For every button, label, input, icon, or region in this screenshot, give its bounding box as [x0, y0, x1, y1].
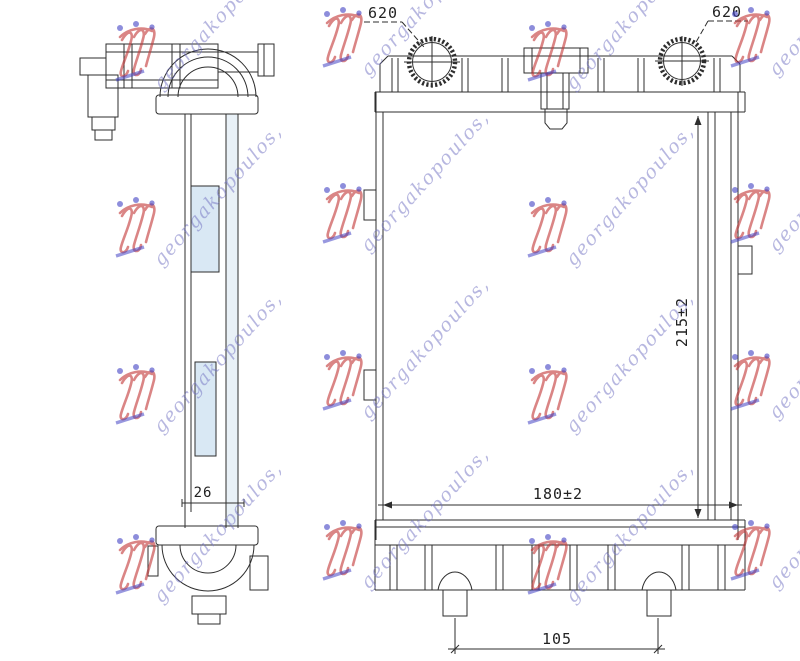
side-right-bracket	[258, 44, 274, 76]
dimension-label-neck-right: 620	[712, 3, 742, 21]
mounting-foot-right	[647, 590, 671, 616]
leader-neck-right	[695, 21, 748, 44]
side-hose-step	[92, 117, 115, 130]
side-core-panel-lower	[195, 362, 216, 456]
core-clip-left-lower	[364, 370, 376, 400]
side-view-drawing	[80, 44, 274, 624]
dimension-label-height: 215±2	[673, 297, 691, 347]
leader-neck-left	[364, 22, 424, 47]
side-hose-elbow	[88, 75, 118, 117]
dimension-label-depth: 26	[194, 485, 213, 501]
core-clip-right	[738, 246, 752, 274]
side-bottom-dome-outer	[162, 545, 254, 591]
top-center-bracket	[524, 48, 588, 73]
dimension-label-width: 180±2	[533, 485, 583, 503]
side-bottom-spout	[192, 596, 226, 614]
drawing-svg: 26	[0, 0, 800, 661]
side-dome-outer	[160, 49, 256, 97]
side-hose-endcap	[80, 58, 106, 75]
side-hose-tip	[95, 130, 112, 140]
core-clip-left-upper	[364, 190, 376, 220]
dimension-label-neck-left: 620	[368, 4, 398, 22]
side-dome-base	[156, 95, 258, 114]
mounting-foot-left	[443, 590, 467, 616]
dimension-label-feet-spacing: 105	[542, 630, 572, 648]
side-bottom-left-tab	[148, 546, 158, 576]
front-view-drawing	[364, 21, 752, 654]
side-bottom-base	[156, 526, 258, 545]
side-bottom-right-tab	[250, 556, 268, 590]
radiator-technical-drawing: 26	[0, 0, 800, 661]
side-core-panel-upper	[191, 186, 219, 272]
